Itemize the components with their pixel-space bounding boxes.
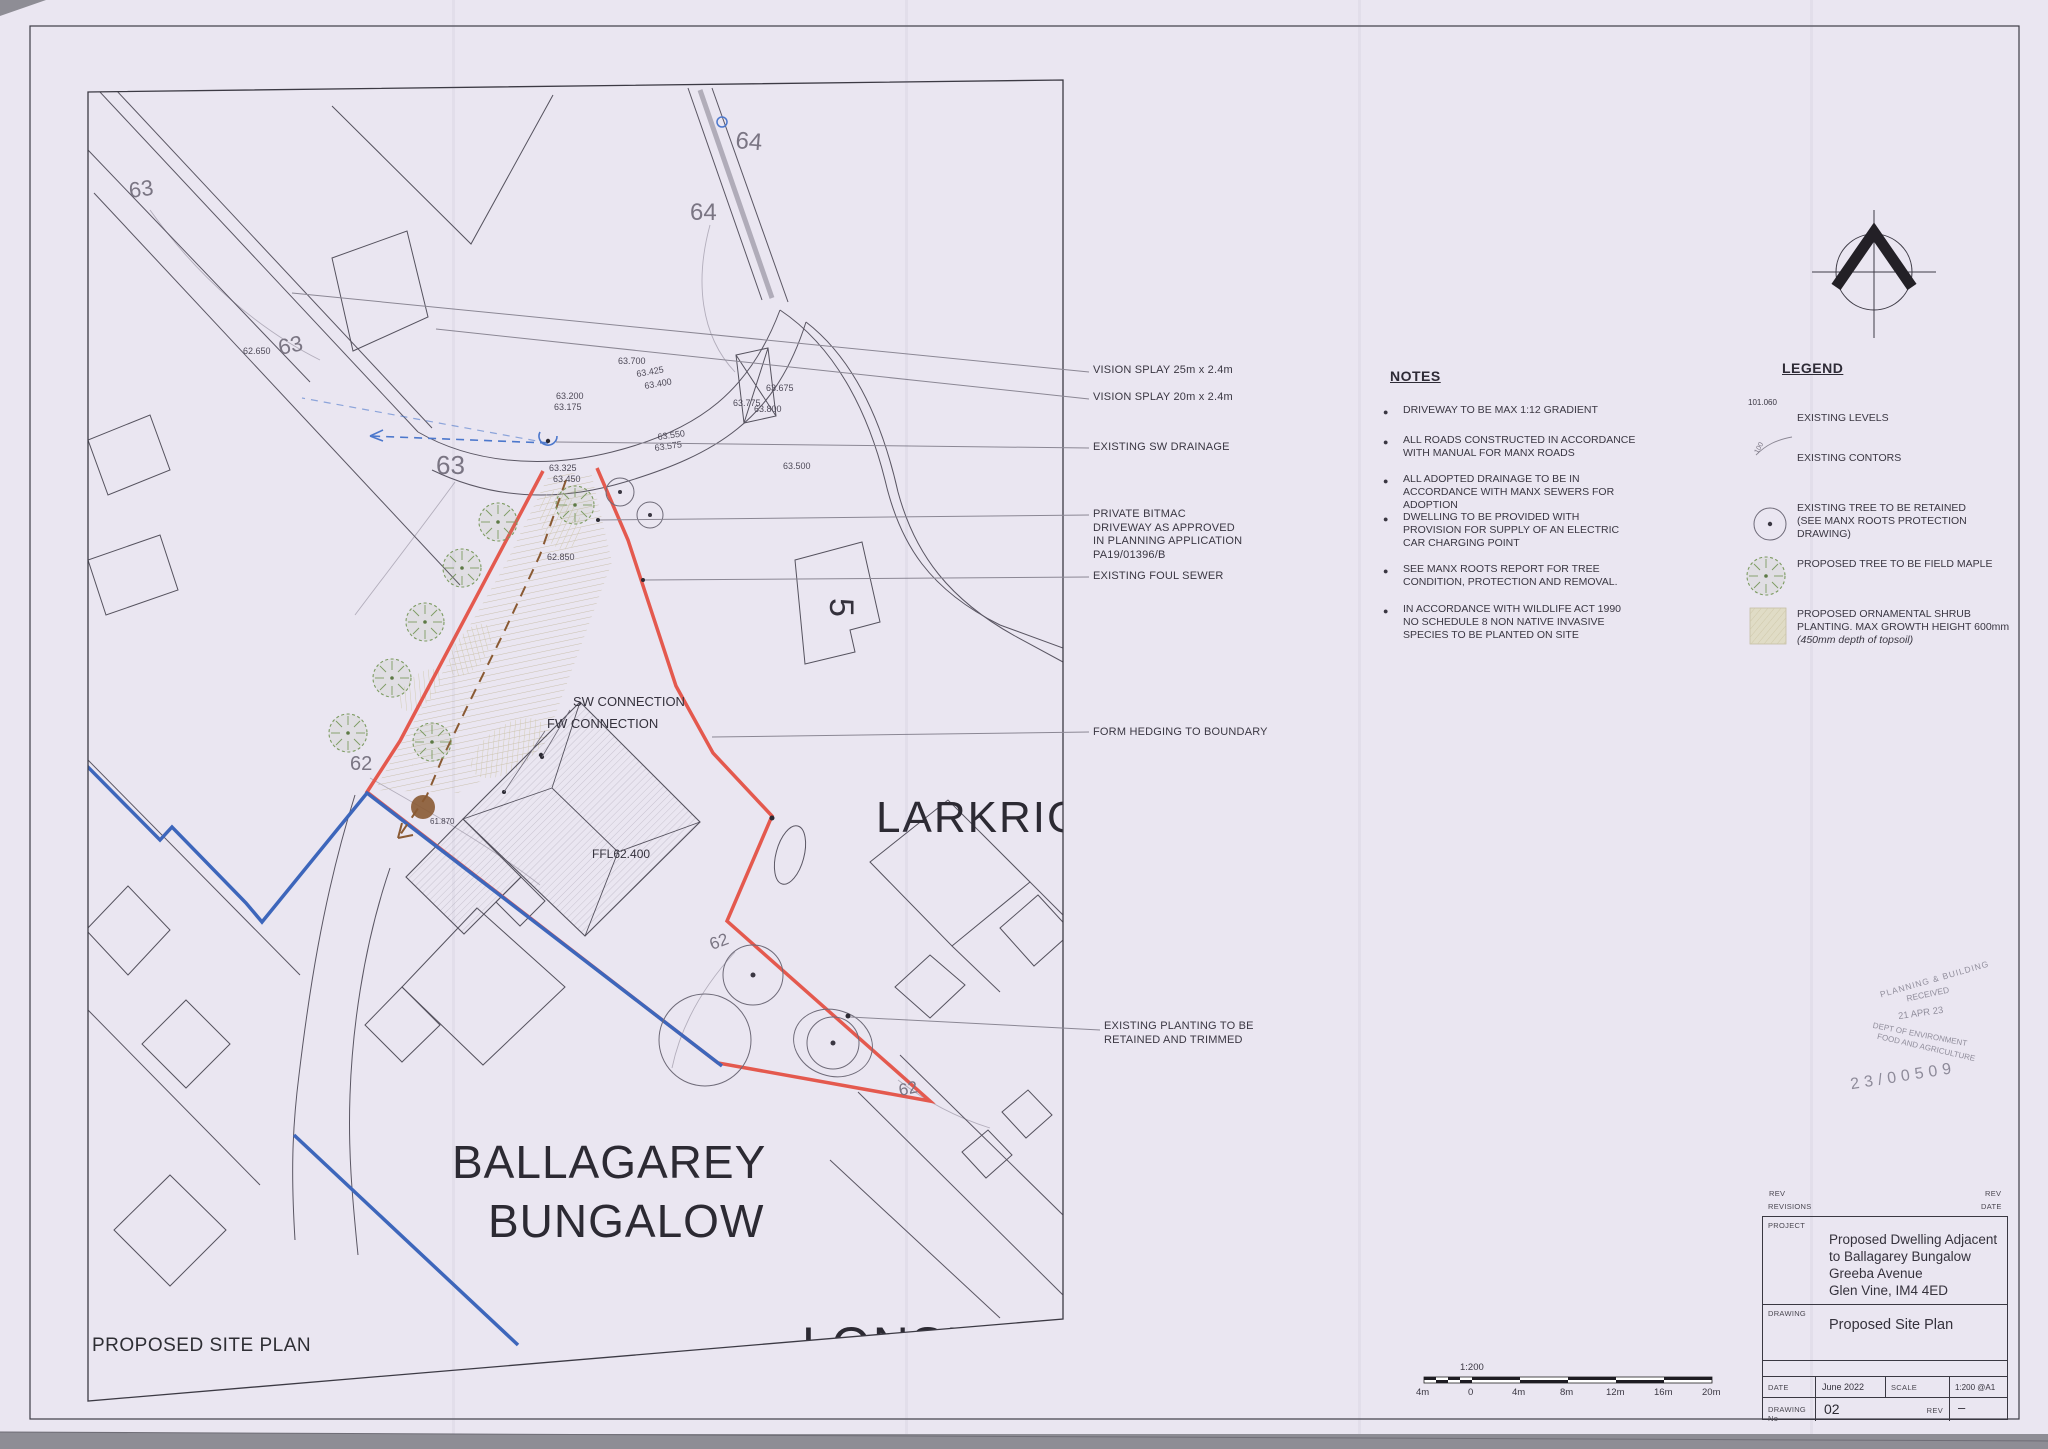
lonsdale-label: LONSDALE [802,1317,1085,1373]
scale-bar [1424,1377,1712,1383]
plan-title-label: PROPOSED SITE PLAN [92,1335,311,1357]
paper-crease [452,0,455,1434]
legend-symbols: 100 [1747,437,1792,644]
drawing-no-label: DRAWING No [1768,1405,1815,1423]
scale-ratio-label: 1:200 [1460,1362,1484,1373]
spot-level: 63.200 [556,391,584,401]
callout-leaders [292,293,1100,1030]
note-text: DRIVEWAY TO BE MAX 1:12 GRADIENT [1403,404,1598,416]
legend-sample-level: 101.060 [1748,398,1777,407]
bullet-icon: ● [1383,513,1388,526]
notes-title: NOTES [1390,368,1441,384]
scan-edge-bottom [0,1432,2048,1449]
scale-tick: 0 [1468,1387,1473,1398]
paper-crease [1358,0,1361,1434]
callout-form-hedging: FORM HEDGING TO BOUNDARY [1093,726,1313,740]
bullet-icon: ● [1383,565,1388,578]
contour-label: 62 [350,753,372,775]
legend-item-shrub-sub: (450mm depth of topsoil) [1797,634,2025,647]
date-value: June 2022 [1822,1382,1864,1392]
spot-level: 63.700 [618,356,646,366]
scan-edge-corner [0,0,46,16]
spot-level: 63.425 [636,364,665,379]
title-block-number-row: DRAWING No 02REV – [1763,1398,2007,1421]
scale-tick: 4m [1512,1387,1525,1398]
title-block: PROJECT Proposed Dwelling Adjacent to Ba… [1762,1216,2008,1420]
project-line: Glen Vine, IM4 4ED [1829,1282,1997,1299]
legend-item-existing-levels: EXISTING LEVELS [1797,412,2027,425]
ffl-label: FFL62.400 [592,847,650,861]
rev-right-label: REV [1985,1189,2001,1198]
drawing-name: Proposed Site Plan [1829,1317,1953,1333]
note-item: ●IN ACCORDANCE WITH WILDLIFE ACT 1990 NO… [1403,603,1638,642]
callout-private-bitmac-driveway: PRIVATE BITMAC DRIVEWAY AS APPROVED IN P… [1093,508,1245,562]
note-item: ●DRIVEWAY TO BE MAX 1:12 GRADIENT [1403,404,1638,417]
callout-existing-planting: EXISTING PLANTING TO BE RETAINED AND TRI… [1104,1020,1264,1047]
site-plan-drawing: 63 63 63 64 64 62 62 62 62.650 63.700 63… [0,0,2048,1449]
project-label: PROJECT [1768,1221,1805,1230]
bullet-icon: ● [1383,605,1388,618]
revisions-label: REVISIONS [1768,1202,1812,1211]
spot-level: 63.450 [553,474,581,484]
legend-title: LEGEND [1782,360,1843,376]
note-item: ●DWELLING TO BE PROVIDED WITH PROVISION … [1403,511,1638,550]
ballagarey-label-1: BALLAGAREY [452,1136,766,1188]
title-block-project-row: PROJECT Proposed Dwelling Adjacent to Ba… [1763,1217,2007,1305]
scale-tick: 8m [1560,1387,1573,1398]
callout-existing-foul-sewer: EXISTING FOUL SEWER [1093,570,1313,584]
spot-level: 63.675 [766,383,794,393]
spot-level: 62.650 [243,346,271,356]
rev-label: REV [1769,1189,1785,1198]
contour-label: 63 [436,450,465,480]
spot-level: 62.850 [547,552,575,562]
scale-label: SCALE [1891,1383,1917,1392]
rev-cell-label: REV [1927,1406,1943,1415]
scale-tick: 16m [1654,1387,1672,1398]
note-item: ●ALL ROADS CONSTRUCTED IN ACCORDANCE WIT… [1403,434,1638,460]
callout-existing-sw-drainage: EXISTING SW DRAINAGE [1093,441,1313,455]
contour-label: 62 [897,1077,919,1100]
contour-label: 63 [127,175,155,203]
scale-tick: 12m [1606,1387,1624,1398]
spot-level: 63.500 [783,461,811,471]
scale-value: 1:200 @A1 [1955,1383,1995,1392]
callout-vision-splay-25: VISION SPLAY 25m x 2.4m [1093,364,1313,378]
tree-trunk-dot [411,795,435,819]
contour-label: 63 [276,330,305,360]
contour-label: 64 [690,199,717,226]
legend-item-existing-tree: EXISTING TREE TO BE RETAINED (SEE MANX R… [1797,502,1989,541]
legend-item-existing-contors: EXISTING CONTORS [1797,452,2027,465]
house-number-label: 5 [822,598,860,617]
ballagarey-label-2: BUNGALOW [488,1195,764,1247]
road-kerb-thick [700,90,772,298]
drawing-no-value: 02 [1824,1401,1840,1417]
bullet-icon: ● [1383,475,1388,488]
legend-proposed-tree-icon [1747,557,1785,595]
drawing-label: DRAWING [1768,1309,1806,1318]
fw-connection-label: FW CONNECTION [547,716,658,731]
scale-tick: 4m [1416,1387,1429,1398]
date-right-label: DATE [1981,1202,2002,1211]
legend-item-shrub: PROPOSED ORNAMENTAL SHRUB PLANTING. MAX … [1797,608,2025,634]
project-line: to Ballagarey Bungalow [1829,1248,1997,1265]
title-block-drawing-row: DRAWING Proposed Site Plan [1763,1305,2007,1361]
buildings [86,95,1072,1286]
contour-label: 64 [734,127,763,156]
note-text: DWELLING TO BE PROVIDED WITH PROVISION F… [1403,511,1619,549]
plan-map: 63 63 63 64 64 62 62 62 62.650 63.700 63… [83,88,1085,1373]
date-label: DATE [1768,1383,1789,1392]
note-text: IN ACCORDANCE WITH WILDLIFE ACT 1990 NO … [1403,603,1621,641]
bullet-icon: ● [1383,436,1388,449]
spot-level: 63.800 [754,404,782,414]
rev-value: – [1958,1400,1965,1415]
note-item: ●SEE MANX ROOTS REPORT FOR TREE CONDITIO… [1403,563,1638,589]
title-block-spacer-row [1763,1361,2007,1377]
note-text: ALL ROADS CONSTRUCTED IN ACCORDANCE WITH… [1403,434,1635,459]
note-text: ALL ADOPTED DRAINAGE TO BE IN ACCORDANCE… [1403,473,1614,511]
note-item: ●ALL ADOPTED DRAINAGE TO BE IN ACCORDANC… [1403,473,1638,512]
spot-level: 63.325 [549,463,577,473]
sw-connection-label: SW CONNECTION [573,694,685,709]
bullet-icon: ● [1383,406,1388,419]
project-line: Proposed Dwelling Adjacent [1829,1231,1997,1248]
legend-item-proposed-tree: PROPOSED TREE TO BE FIELD MAPLE [1797,558,2027,571]
callout-vision-splay-20: VISION SPLAY 20m x 2.4m [1093,391,1313,405]
paper-crease [905,0,908,1434]
sheet-border [30,26,2019,1419]
north-arrow-icon [1812,210,1936,338]
vision-splay-lines [302,117,727,445]
contour-label: 62 [707,929,731,953]
project-line: Greeba Avenue [1829,1265,1997,1282]
scale-tick: 20m [1702,1387,1720,1398]
spot-level: 63.175 [554,402,582,412]
note-text: SEE MANX ROOTS REPORT FOR TREE CONDITION… [1403,563,1618,588]
spot-level: 63.400 [644,376,673,391]
title-block-date-row: DATE June 2022 SCALE 1:200 @A1 [1763,1377,2007,1398]
